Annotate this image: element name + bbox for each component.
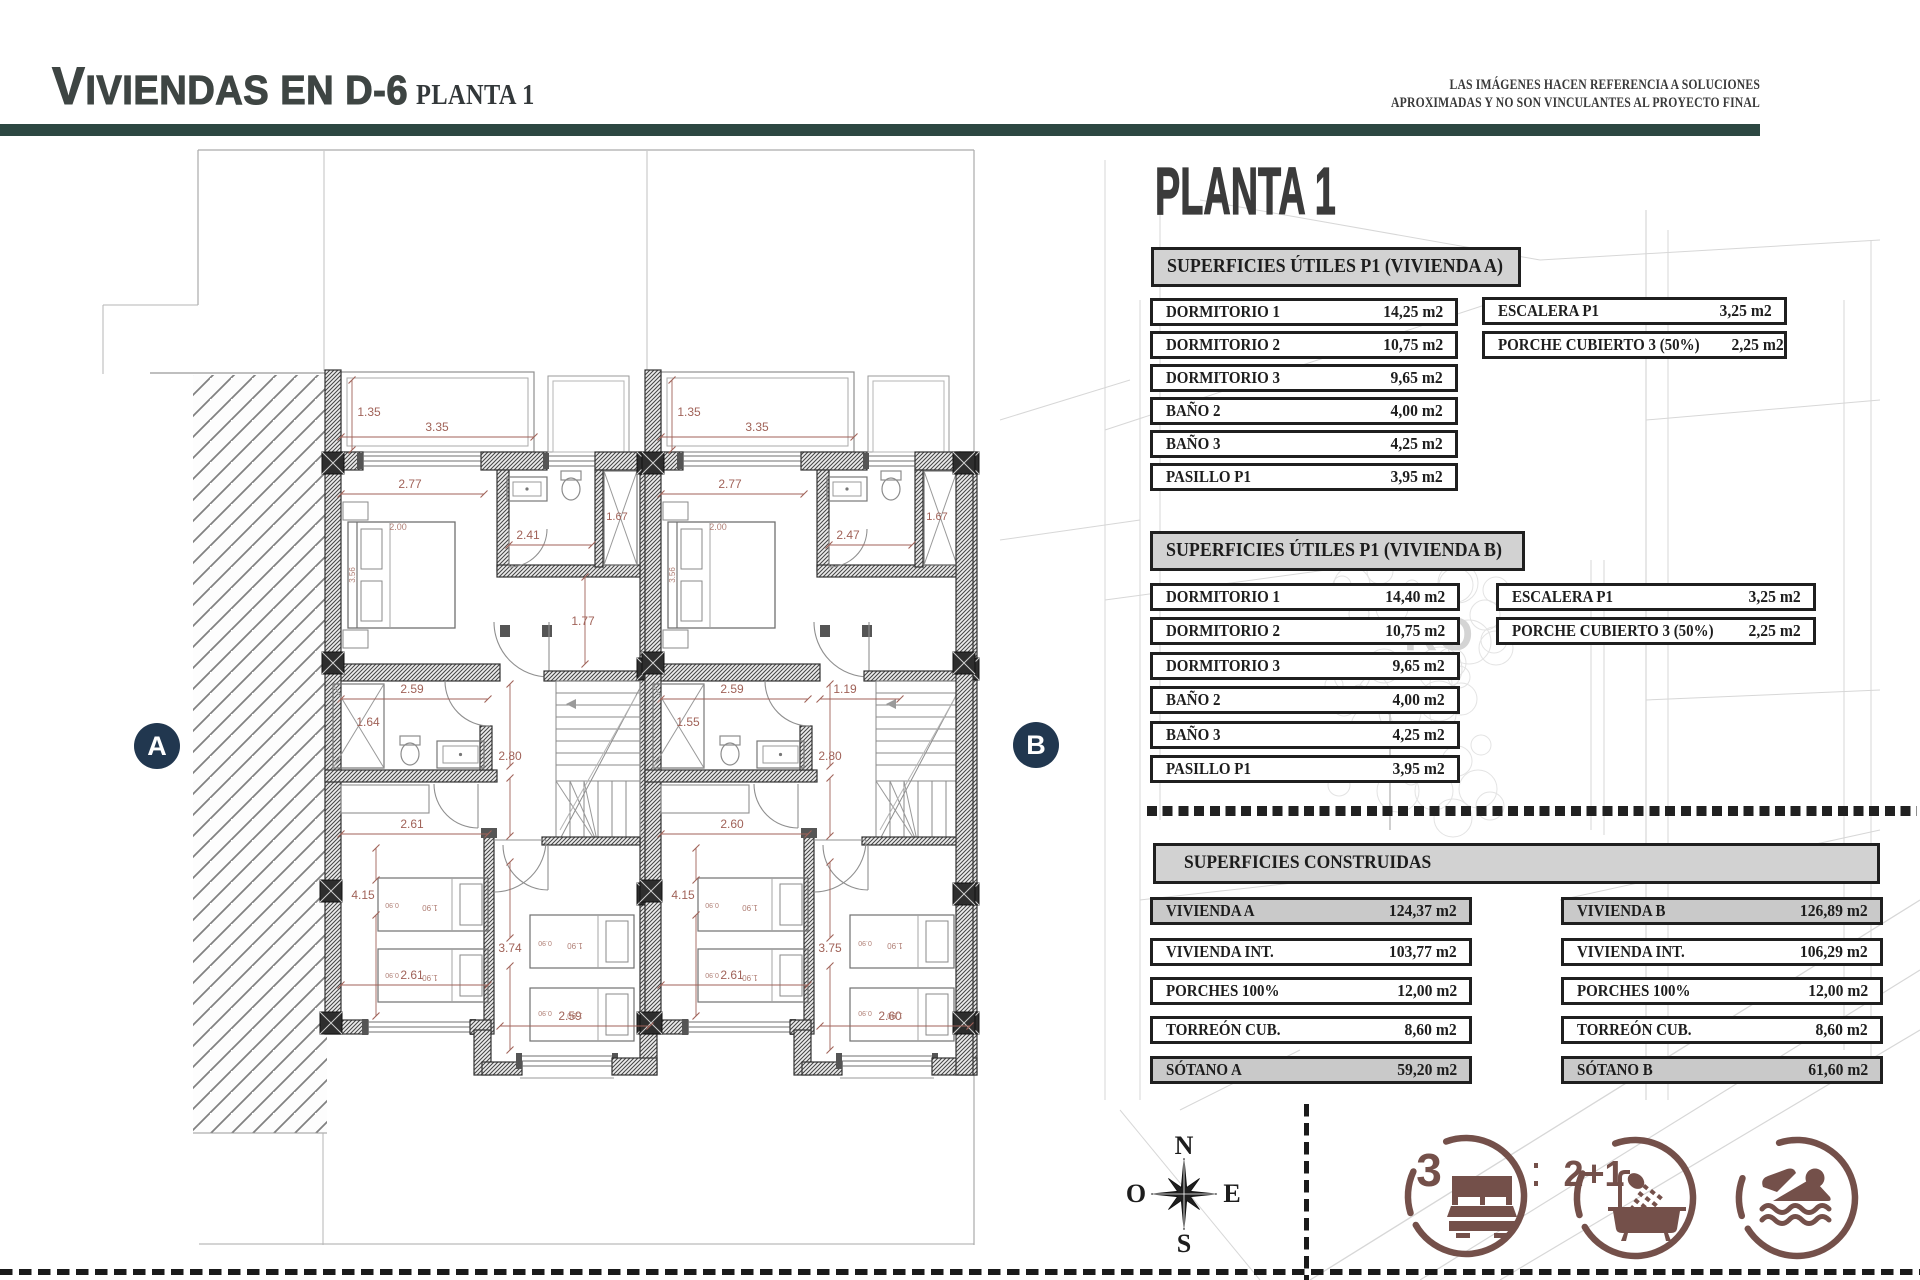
svg-text:S: S <box>1177 1229 1191 1258</box>
svg-text:O: O <box>1126 1179 1146 1208</box>
svg-text:N: N <box>1175 1131 1194 1160</box>
svg-text:E: E <box>1223 1179 1240 1208</box>
svg-text:3: 3 <box>1416 1144 1442 1196</box>
svg-text:2+1: 2+1 <box>1563 1153 1624 1194</box>
